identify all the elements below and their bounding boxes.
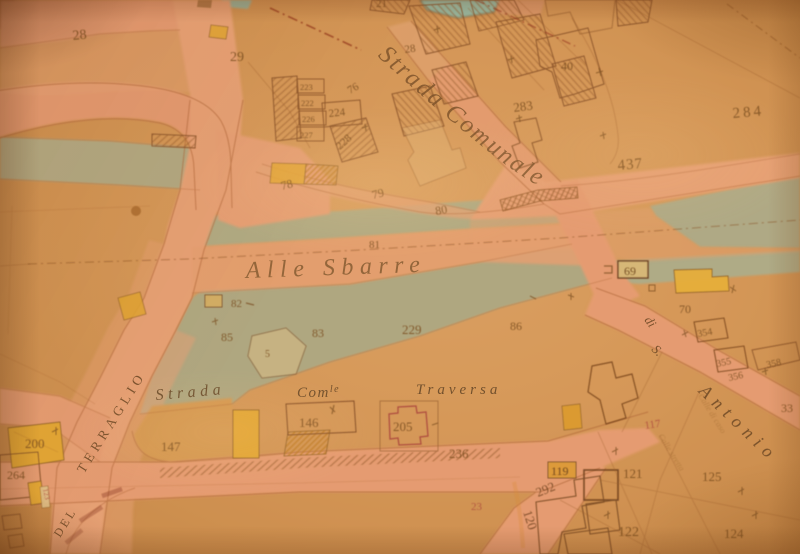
svg-text:229: 229 bbox=[402, 322, 422, 337]
svg-text:222: 222 bbox=[301, 98, 314, 108]
svg-text:119: 119 bbox=[551, 464, 569, 478]
svg-text:69: 69 bbox=[624, 264, 636, 278]
svg-text:264: 264 bbox=[7, 468, 25, 482]
svg-text:122: 122 bbox=[618, 525, 639, 540]
svg-text:70: 70 bbox=[679, 302, 691, 316]
svg-text:437: 437 bbox=[617, 156, 644, 174]
svg-text:Traversa: Traversa bbox=[416, 382, 501, 398]
svg-text:223: 223 bbox=[300, 82, 313, 92]
svg-text:205: 205 bbox=[393, 419, 413, 434]
svg-text:117: 117 bbox=[644, 418, 662, 432]
svg-text:125: 125 bbox=[702, 469, 722, 484]
svg-text:23: 23 bbox=[471, 501, 483, 513]
svg-text:227: 227 bbox=[300, 130, 313, 140]
svg-text:85: 85 bbox=[221, 330, 233, 344]
svg-text:5: 5 bbox=[265, 349, 270, 360]
svg-text:40: 40 bbox=[561, 59, 573, 73]
svg-text:147: 147 bbox=[161, 439, 181, 454]
svg-text:146: 146 bbox=[299, 415, 319, 430]
svg-text:82: 82 bbox=[231, 298, 242, 310]
svg-text:283: 283 bbox=[512, 97, 533, 115]
svg-text:226: 226 bbox=[302, 114, 315, 124]
svg-text:236: 236 bbox=[449, 446, 469, 461]
svg-text:83: 83 bbox=[312, 326, 324, 340]
svg-text:121: 121 bbox=[623, 466, 643, 481]
svg-text:29: 29 bbox=[230, 50, 244, 65]
svg-text:28: 28 bbox=[72, 28, 87, 44]
svg-text:33: 33 bbox=[781, 401, 793, 415]
svg-text:28: 28 bbox=[404, 42, 417, 55]
svg-text:224: 224 bbox=[328, 106, 346, 120]
svg-text:21: 21 bbox=[376, 0, 387, 10]
svg-text:81: 81 bbox=[369, 239, 380, 251]
svg-text:284: 284 bbox=[732, 103, 765, 122]
svg-text:200: 200 bbox=[25, 436, 45, 451]
svg-text:86: 86 bbox=[510, 319, 522, 333]
svg-text:80: 80 bbox=[434, 202, 448, 218]
svg-text:124: 124 bbox=[724, 526, 744, 541]
